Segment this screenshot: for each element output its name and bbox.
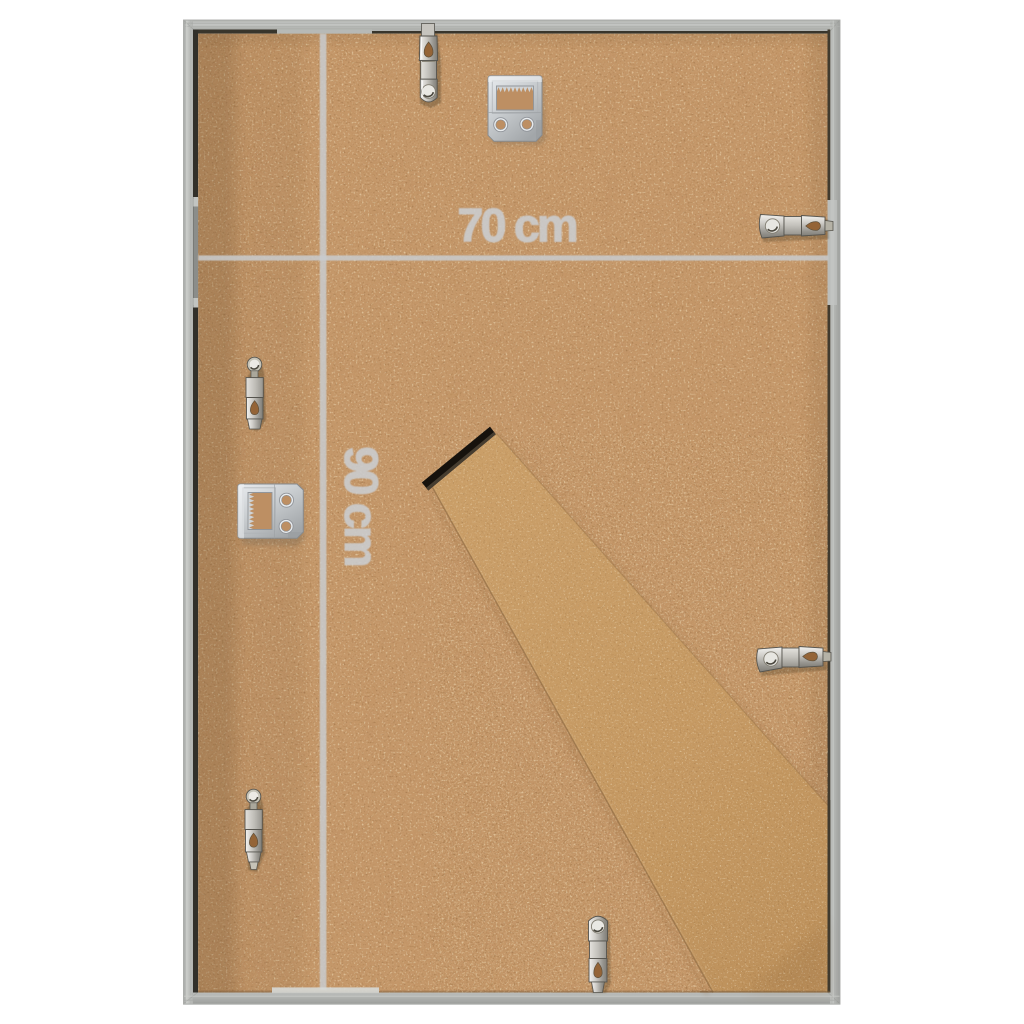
svg-text:70 cm: 70 cm <box>457 199 575 252</box>
svg-text:90 cm: 90 cm <box>335 446 388 564</box>
